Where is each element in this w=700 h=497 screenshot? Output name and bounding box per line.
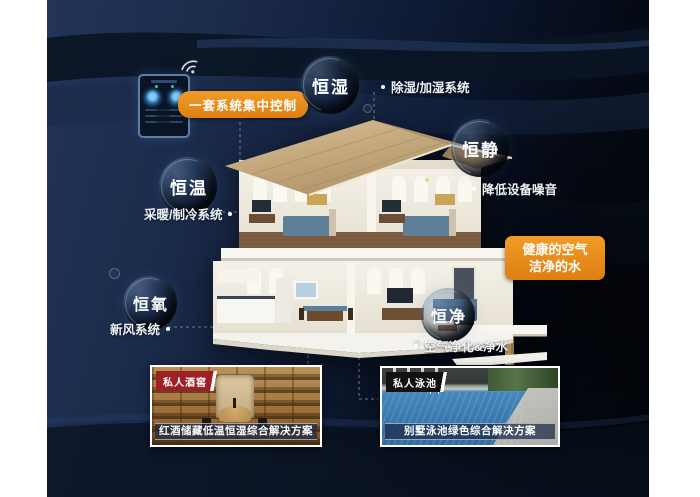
bullet-dot [381, 85, 385, 89]
wine-cellar-caption: 红酒储藏低温恒湿综合解决方案 [155, 423, 317, 440]
dial-icon [145, 90, 160, 105]
decorative-bubble [363, 104, 372, 113]
central-control-label: 一套系统集中控制 [178, 91, 308, 118]
bubble-constant-quiet: 恒静 [451, 119, 509, 177]
callout-purification-system: 空气净化&净水 [414, 336, 508, 355]
callout-quiet-system: 降低设备噪音 [472, 179, 557, 198]
phone-menu-row [145, 109, 183, 112]
bullet-dot [228, 212, 232, 216]
bullet-dot [472, 187, 476, 191]
benefit-box: 健康的空气 洁净的水 [505, 236, 605, 280]
infographic-canvas: 一套系统集中控制 健康的空气 洁净的水 恒湿 恒静 恒温 恒氧 恒净 除湿/加湿… [0, 0, 700, 497]
pool-caption: 别墅泳池绿色综合解决方案 [385, 423, 555, 440]
callout-humidity-system: 除湿/加湿系统 [381, 77, 469, 96]
phone-menu-row [145, 121, 183, 124]
callout-temperature-system: 采暖/制冷系统 [144, 204, 232, 223]
decorative-bubble [109, 268, 120, 279]
bubble-constant-purity: 恒净 [421, 288, 475, 342]
bullet-dot [414, 344, 418, 348]
callout-fresh-air-system: 新风系统 [110, 319, 170, 338]
wine-cellar-photo: 私人酒窖 红酒储藏低温恒湿综合解决方案 [150, 365, 322, 447]
phone-status-leds [148, 85, 180, 88]
benefit-line-2: 洁净的水 [509, 258, 601, 275]
bullet-dot [166, 327, 170, 331]
phone-titlebar [151, 80, 177, 83]
pool-photo: 私人泳池 别墅泳池绿色综合解决方案 [380, 366, 560, 447]
benefit-line-1: 健康的空气 [509, 241, 601, 258]
smart-home-infographic: 一套系统集中控制 健康的空气 洁净的水 恒湿 恒静 恒温 恒氧 恒净 除湿/加湿… [47, 0, 649, 497]
phone-menu-row [145, 115, 183, 118]
pool-badge: 私人泳池 [386, 372, 451, 392]
bubble-constant-humidity: 恒湿 [301, 56, 359, 114]
wine-cellar-badge: 私人酒窖 [156, 371, 221, 391]
